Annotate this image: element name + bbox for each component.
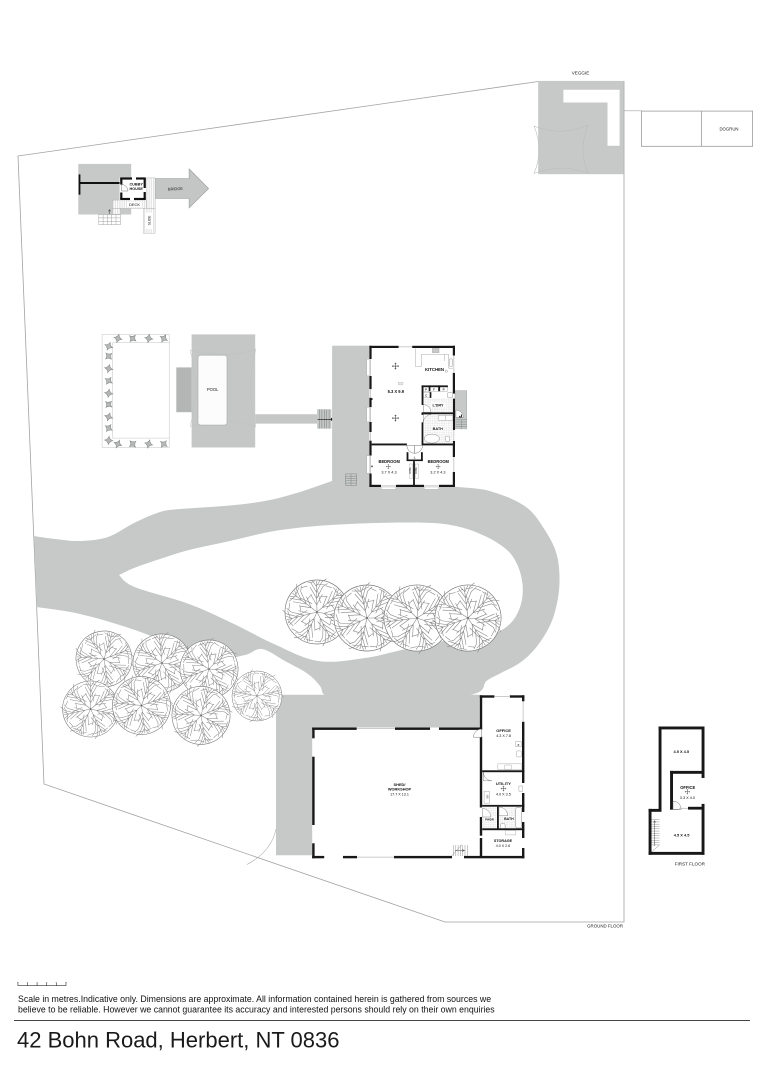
svg-text:4.0 X 3.5: 4.0 X 3.5: [496, 793, 511, 797]
svg-text:BATH: BATH: [433, 427, 444, 431]
svg-text:L: L: [414, 456, 416, 460]
svg-text:BRIDGE: BRIDGE: [168, 186, 184, 192]
svg-text:FIRST FLOOR: FIRST FLOOR: [675, 861, 706, 866]
svg-text:HOUSE: HOUSE: [129, 187, 143, 191]
svg-text:CUBBY: CUBBY: [129, 182, 143, 186]
svg-text:GROUND FLOOR: GROUND FLOOR: [587, 924, 623, 929]
svg-text:3.7 X 4.3: 3.7 X 4.3: [381, 471, 396, 475]
svg-text:4.5 X 4.5: 4.5 X 4.5: [674, 749, 690, 754]
svg-text:OFFICE: OFFICE: [496, 728, 511, 733]
svg-text:OFFICE: OFFICE: [680, 785, 695, 790]
svg-text:VEGGIE: VEGGIE: [572, 71, 590, 76]
svg-text:F: F: [433, 388, 435, 392]
svg-text:UTILITY: UTILITY: [496, 781, 511, 786]
svg-text:3.3 X 4.0: 3.3 X 4.0: [680, 796, 695, 800]
svg-text:KITCHEN: KITCHEN: [425, 367, 444, 372]
svg-text:42 Bohn Road, Herbert, NT 0836: 42 Bohn Road, Herbert, NT 0836: [17, 1028, 339, 1053]
svg-text:SLIDE: SLIDE: [148, 215, 152, 226]
svg-text:ROBE: ROBE: [410, 467, 412, 474]
svg-text:4.0 X 2.6: 4.0 X 2.6: [496, 844, 510, 848]
svg-text:POOL: POOL: [207, 387, 219, 392]
svg-text:STORAGE: STORAGE: [494, 839, 513, 843]
svg-text:PWDR: PWDR: [485, 818, 495, 822]
svg-text:ROBE: ROBE: [416, 467, 418, 474]
svg-text:DECK: DECK: [129, 202, 140, 207]
svg-text:BATH: BATH: [504, 817, 514, 821]
svg-text:F: F: [518, 743, 520, 747]
svg-text:BEDROOM: BEDROOM: [379, 459, 401, 464]
svg-text:17.7 X 13.1: 17.7 X 13.1: [390, 793, 409, 797]
svg-text:DOGRUN: DOGRUN: [719, 127, 738, 132]
svg-text:3.2 X 4.3: 3.2 X 4.3: [430, 471, 445, 475]
svg-text:Scale in metres.Indicative onl: Scale in metres.Indicative only. Dimensi…: [18, 994, 491, 1004]
svg-text:4.5 X 4.5: 4.5 X 4.5: [674, 832, 690, 837]
svg-text:BEDROOM: BEDROOM: [428, 459, 450, 464]
svg-text:L’DRY: L’DRY: [432, 404, 444, 408]
svg-text:BIR: BIR: [486, 794, 489, 798]
svg-text:P: P: [425, 388, 427, 392]
svg-text:P: P: [443, 388, 445, 392]
svg-text:4.3 X 7.8: 4.3 X 7.8: [496, 734, 511, 738]
svg-text:WORKSHOP: WORKSHOP: [388, 787, 412, 792]
svg-text:believe to be reliable. Howeve: believe to be reliable. However we canno…: [18, 1004, 495, 1014]
svg-text:5.3 X 9.9: 5.3 X 9.9: [388, 389, 405, 394]
